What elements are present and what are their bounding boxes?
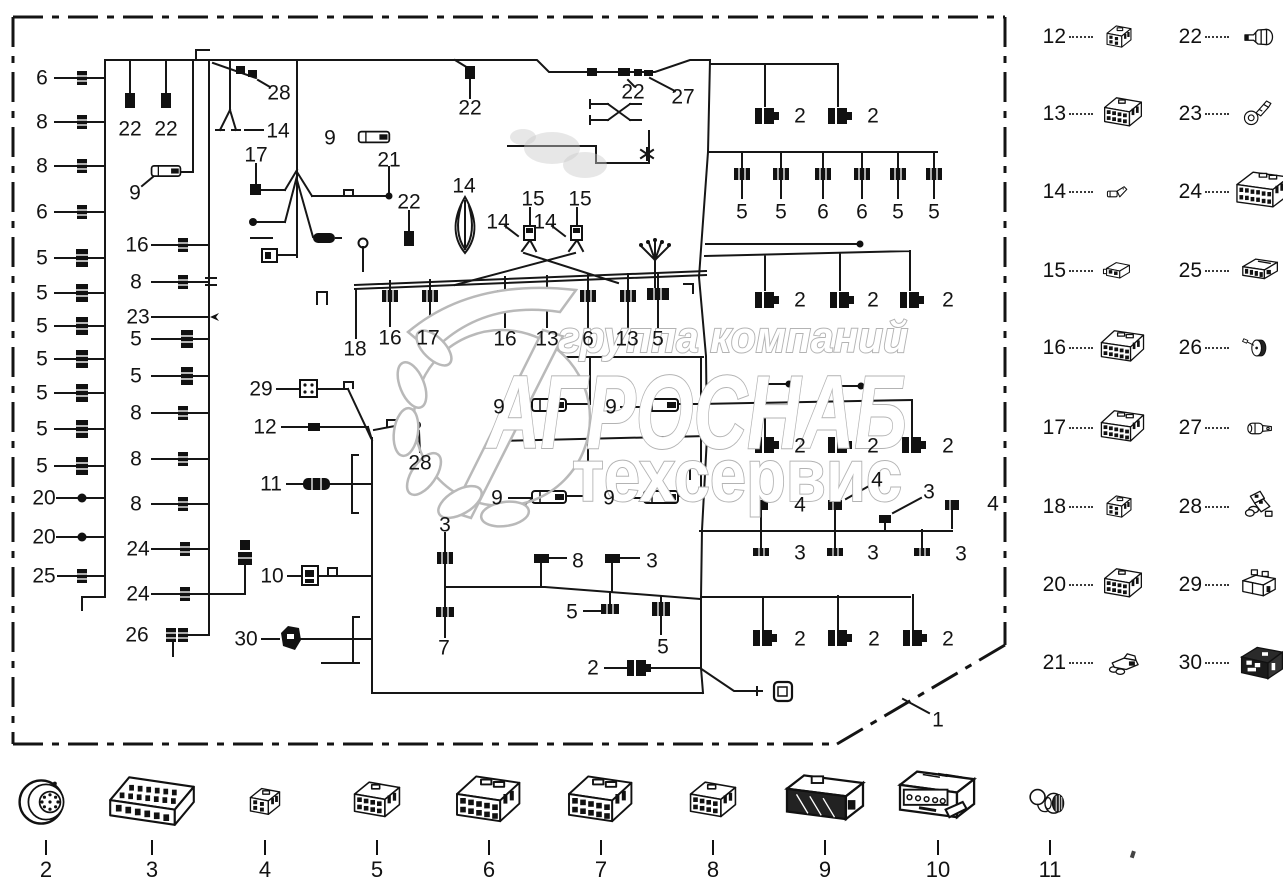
- legend-leader-line: [151, 840, 153, 855]
- legend-part-number: 3: [146, 857, 158, 883]
- connector-icon: [6, 764, 86, 840]
- icon-box: [6, 762, 86, 840]
- legend-leader-line: [45, 840, 47, 855]
- legend-part-number: 4: [259, 857, 271, 883]
- icon-box: [1019, 762, 1081, 840]
- legend-part-number: 9: [819, 857, 831, 883]
- legend-part-number: 11: [1039, 857, 1062, 883]
- harness-diagram-page: группа компаний АГРОСНАБ техсервис 6 8 8…: [0, 0, 1283, 886]
- legend-part-number: 6: [483, 857, 495, 883]
- icon-box: [561, 762, 641, 840]
- legend-leader-line: [376, 840, 378, 855]
- legend-entry: 9: [767, 762, 883, 883]
- legend-entry: 8: [655, 762, 771, 883]
- legend-leader-line: [712, 840, 714, 855]
- icon-box: [890, 762, 986, 840]
- legend-entry: 7: [543, 762, 659, 883]
- icon-box: [680, 762, 746, 840]
- legend-entry: 11: [992, 762, 1108, 883]
- legend-leader-line: [937, 840, 939, 855]
- connector-icon: [890, 764, 986, 840]
- connector-icon: [237, 764, 293, 840]
- legend-entry: 2: [0, 762, 104, 883]
- legend-part-number: 2: [40, 857, 52, 883]
- legend-entry: 5: [319, 762, 435, 883]
- legend-entry: 3: [94, 762, 210, 883]
- connector-icon: [101, 764, 203, 840]
- connector-icon: [449, 764, 529, 840]
- connector-icon: [344, 764, 410, 840]
- connector-icon: [561, 764, 641, 840]
- connector-icon: [680, 764, 746, 840]
- legend-leader-line: [824, 840, 826, 855]
- icon-box: [449, 762, 529, 840]
- legend-part-number: 8: [707, 857, 719, 883]
- icon-box: [101, 762, 203, 840]
- legend-entry: 4: [207, 762, 323, 883]
- legend-entry: 10: [880, 762, 996, 883]
- connector-legend-bottom: 2 3 4 5: [0, 0, 1283, 886]
- legend-leader-line: [264, 840, 266, 855]
- icon-box: [344, 762, 410, 840]
- legend-part-number: 10: [926, 857, 950, 883]
- legend-part-number: 7: [595, 857, 607, 883]
- icon-box: [777, 762, 873, 840]
- legend-part-number: 5: [371, 857, 383, 883]
- connector-icon: [1019, 764, 1081, 840]
- connector-icon: [777, 764, 873, 840]
- legend-leader-line: [488, 840, 490, 855]
- legend-entry: 6: [431, 762, 547, 883]
- icon-box: [237, 762, 293, 840]
- legend-leader-line: [1049, 840, 1051, 855]
- legend-leader-line: [600, 840, 602, 855]
